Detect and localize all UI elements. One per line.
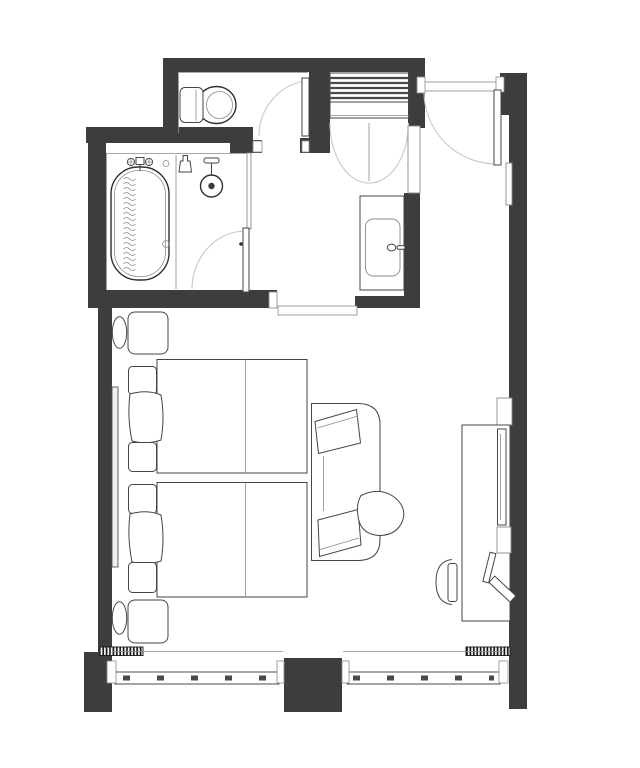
window-right	[347, 672, 500, 684]
window-left	[115, 672, 279, 684]
entry-door	[424, 90, 501, 165]
room-entry	[417, 77, 512, 205]
pillow	[129, 443, 157, 472]
bedside-oval-1	[112, 317, 126, 349]
wall-toilet-closet-divider	[309, 58, 330, 145]
pillow	[129, 485, 157, 514]
bed-2	[129, 483, 308, 598]
toilet-door	[259, 78, 309, 136]
wall-niche-top	[497, 398, 512, 425]
sofa	[312, 404, 381, 561]
room-bathroom	[107, 153, 252, 292]
window-jamb	[499, 661, 508, 683]
wall-niche-mid	[497, 527, 511, 553]
closet-shelves	[330, 73, 409, 118]
headboard-rail	[112, 387, 118, 567]
wall-vanity-bottom	[355, 296, 420, 308]
window-pier	[284, 658, 342, 712]
wall-left-upper	[88, 127, 106, 303]
side-table	[357, 491, 403, 535]
window-jamb	[277, 661, 284, 683]
nightstand-2	[128, 600, 168, 643]
floor-plan-canvas	[0, 0, 640, 768]
wall-bathroom-bottom	[88, 290, 277, 308]
window-jamb	[342, 661, 349, 683]
toilet-door-jamb-right	[302, 141, 309, 152]
wall-panel	[506, 163, 512, 205]
bathtub	[111, 167, 169, 280]
toilet	[180, 87, 236, 124]
wall-vanity-right	[404, 193, 420, 308]
vanity-sink	[366, 219, 406, 276]
pillow	[129, 563, 157, 593]
entry-lintel	[420, 82, 503, 91]
floor-plan-drawing	[0, 0, 640, 768]
tall-cabinet	[408, 126, 420, 193]
bedside-oval-2	[112, 602, 126, 634]
wall-bedroom-left	[98, 302, 112, 660]
bed-1	[129, 360, 308, 474]
pillow	[129, 367, 157, 395]
hand-shower	[179, 156, 192, 173]
closet-doors	[330, 123, 409, 183]
window-jamb	[107, 661, 116, 683]
bedroom-opening-jamb	[269, 292, 277, 308]
desk-console	[436, 398, 516, 621]
desk-chair	[436, 560, 457, 605]
nightstand-1	[128, 312, 168, 354]
bathroom-partition-upper	[247, 153, 251, 229]
rain-shower	[201, 158, 223, 197]
entry-jamb-left	[417, 77, 425, 93]
tv	[498, 429, 507, 525]
wall-top	[163, 58, 425, 72]
pillow	[129, 392, 163, 443]
room-bedroom	[100, 312, 516, 656]
toilet-door-jamb-left	[253, 141, 262, 152]
room-closet	[330, 73, 409, 183]
bathroom-door	[192, 228, 249, 292]
bedroom-threshold	[278, 306, 357, 315]
pillow	[129, 512, 163, 564]
